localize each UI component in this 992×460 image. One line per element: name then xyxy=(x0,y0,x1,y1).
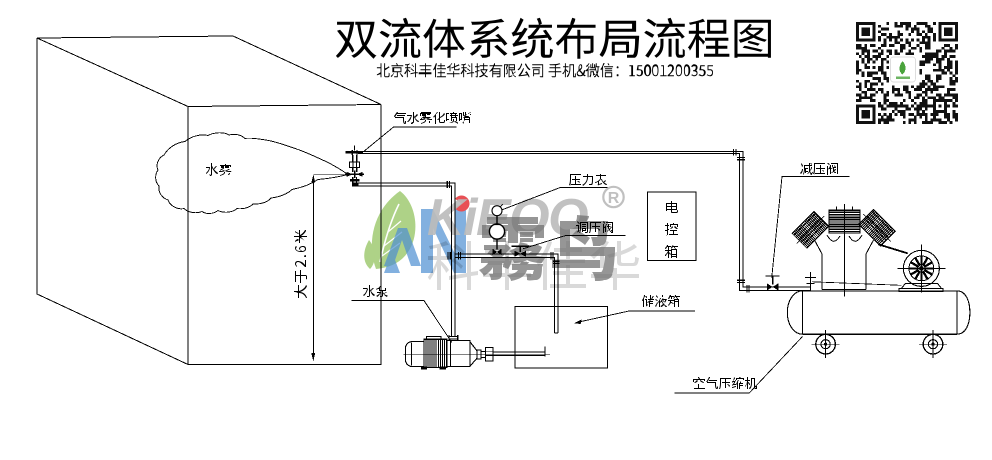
svg-text:R: R xyxy=(608,190,620,207)
